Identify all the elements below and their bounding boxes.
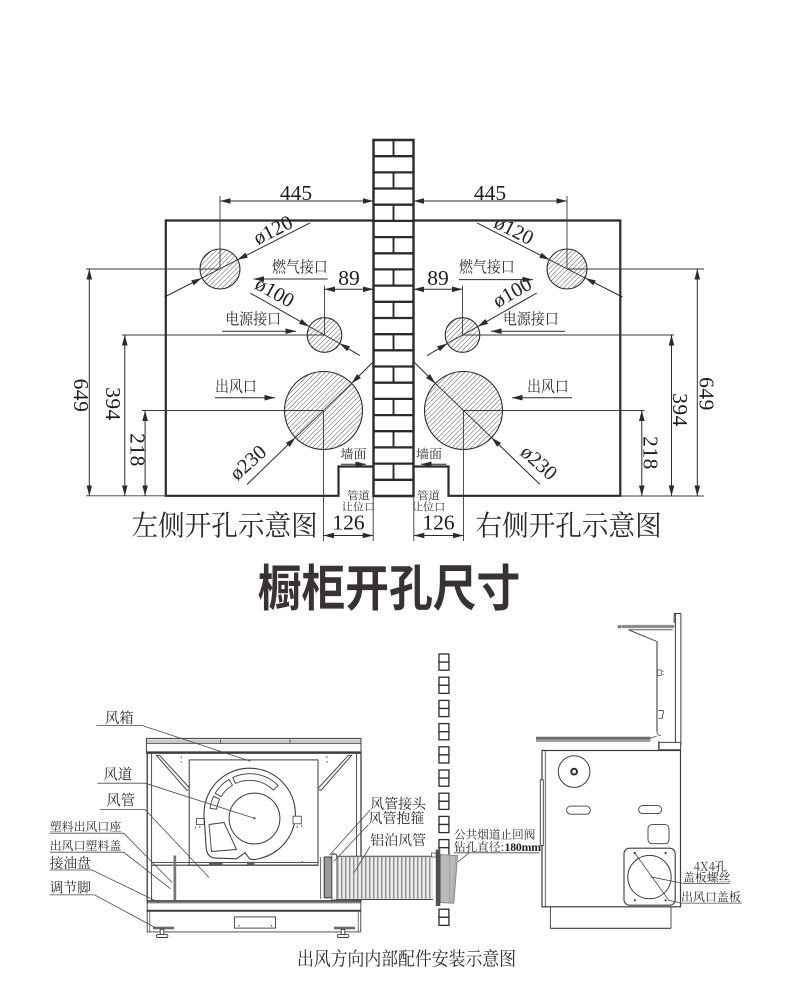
svg-text:649: 649 (695, 377, 719, 411)
svg-text:218: 218 (639, 436, 663, 470)
svg-text:126: 126 (332, 510, 365, 534)
svg-text:89: 89 (427, 266, 449, 290)
svg-text:394: 394 (668, 393, 692, 427)
svg-text:126: 126 (422, 510, 455, 534)
svg-text:649: 649 (69, 379, 93, 413)
svg-text:218: 218 (126, 433, 150, 467)
svg-text:180mm: 180mm (505, 840, 542, 854)
svg-text:89: 89 (338, 266, 360, 290)
svg-text:445: 445 (280, 181, 312, 205)
svg-text:394: 394 (101, 387, 125, 421)
svg-text:445: 445 (474, 181, 506, 205)
